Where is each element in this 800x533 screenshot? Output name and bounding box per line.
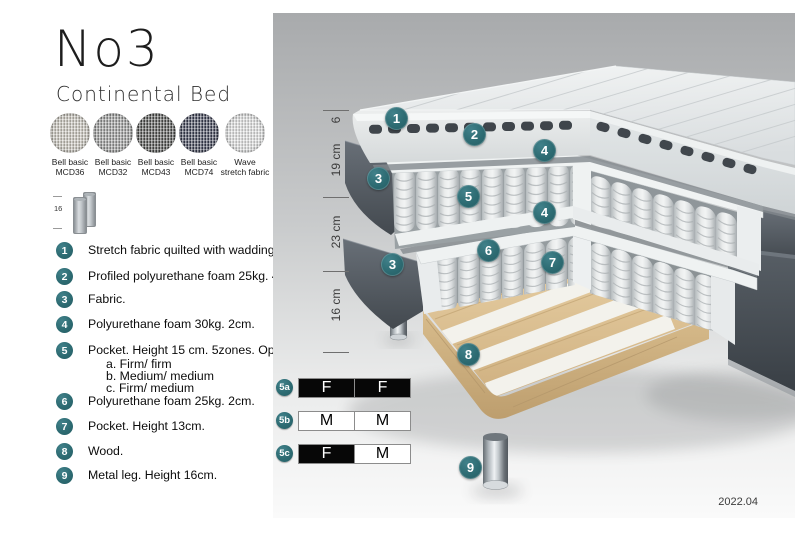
- callout-badge-7: 7: [541, 251, 564, 274]
- leg-icon-tick: [53, 228, 62, 229]
- legend-item-9: Metal leg. Height 16cm.: [88, 468, 217, 482]
- firmness-row-5b: M M: [298, 411, 411, 431]
- legend-item-3: Fabric.: [88, 292, 126, 306]
- dimension-label-16cm: 16 cm: [329, 275, 343, 335]
- legend-item-5-option-c: c. Firm/ medium: [106, 381, 194, 395]
- legend-item-1: Stretch fabric quilted with wadding.: [88, 243, 278, 257]
- dimension-tick: [323, 352, 349, 353]
- version-label: 2022.04: [678, 496, 758, 508]
- bed-diagram-panel: 6 19 cm 23 cm 16 cm 1 2 4 3 5 4 6 7 3 8 …: [273, 13, 795, 518]
- leg-icon-tick: [53, 196, 62, 197]
- legend-item-5: Pocket. Height 15 cm. 5zones. Option:: [88, 343, 298, 357]
- legend-item-8: Wood.: [88, 444, 123, 458]
- callout-badge-3-upper: 3: [367, 167, 390, 190]
- dimension-label-23cm: 23 cm: [329, 202, 343, 262]
- callout-badge-6: 6: [477, 239, 500, 262]
- page-subtitle: Continental Bed: [56, 84, 231, 104]
- callout-badge-4-lower: 4: [533, 201, 556, 224]
- legend-badge-6: 6: [56, 393, 73, 410]
- firmness-cell: F: [299, 379, 354, 397]
- callout-badge-1: 1: [385, 107, 408, 130]
- firmness-badge-5c: 5c: [276, 445, 293, 462]
- fabric-swatch-5: [225, 113, 265, 153]
- page-title: No3: [54, 24, 160, 74]
- legend-badge-3: 3: [56, 291, 73, 308]
- firmness-badge-5a: 5a: [276, 379, 293, 396]
- legend-badge-2: 2: [56, 268, 73, 285]
- callout-badge-2: 2: [463, 123, 486, 146]
- legend-item-7: Pocket. Height 13cm.: [88, 419, 205, 433]
- bed-illustration: [273, 13, 795, 518]
- legend-item-4: Polyurethane foam 30kg. 2cm.: [88, 317, 255, 331]
- callout-badge-3-lower: 3: [381, 253, 404, 276]
- legend-badge-9: 9: [56, 467, 73, 484]
- firmness-row-5a: F F: [298, 378, 411, 398]
- dimension-tick: [323, 197, 349, 198]
- fabric-swatch-2: [93, 113, 133, 153]
- legend-badge-7: 7: [56, 418, 73, 435]
- dimension-label-19cm: 19 cm: [329, 130, 343, 190]
- fabric-swatch-1: [50, 113, 90, 153]
- firmness-cell: F: [354, 379, 410, 397]
- callout-badge-8: 8: [457, 343, 480, 366]
- callout-badge-4-upper: 4: [533, 139, 556, 162]
- legend-item-6: Polyurethane foam 25kg. 2cm.: [88, 394, 255, 408]
- legend-badge-4: 4: [56, 316, 73, 333]
- firmness-cell: M: [299, 412, 354, 430]
- fabric-swatch-3: [136, 113, 176, 153]
- leg-icon-height: 16: [54, 204, 62, 213]
- firmness-cell: M: [354, 445, 410, 463]
- fabric-swatch-label: Wavestretch fabric: [219, 157, 271, 177]
- legend-item-2: Profiled polyurethane foam 25kg. 4cm.: [88, 269, 299, 283]
- legend-badge-5: 5: [56, 342, 73, 359]
- callout-badge-5: 5: [457, 185, 480, 208]
- callout-badge-9: 9: [459, 456, 482, 479]
- fabric-swatch-4: [179, 113, 219, 153]
- fabric-swatch-label: Bell basicMCD74: [173, 157, 225, 177]
- firmness-badge-5b: 5b: [276, 412, 293, 429]
- legend-badge-8: 8: [56, 443, 73, 460]
- leg-dimension-icon: 16: [52, 190, 110, 238]
- leg-cylinder-front: [73, 197, 87, 234]
- legend-badge-1: 1: [56, 242, 73, 259]
- firmness-row-5c: F M: [298, 444, 411, 464]
- firmness-cell: M: [354, 412, 410, 430]
- firmness-cell: F: [299, 445, 354, 463]
- dimension-tick: [323, 271, 349, 272]
